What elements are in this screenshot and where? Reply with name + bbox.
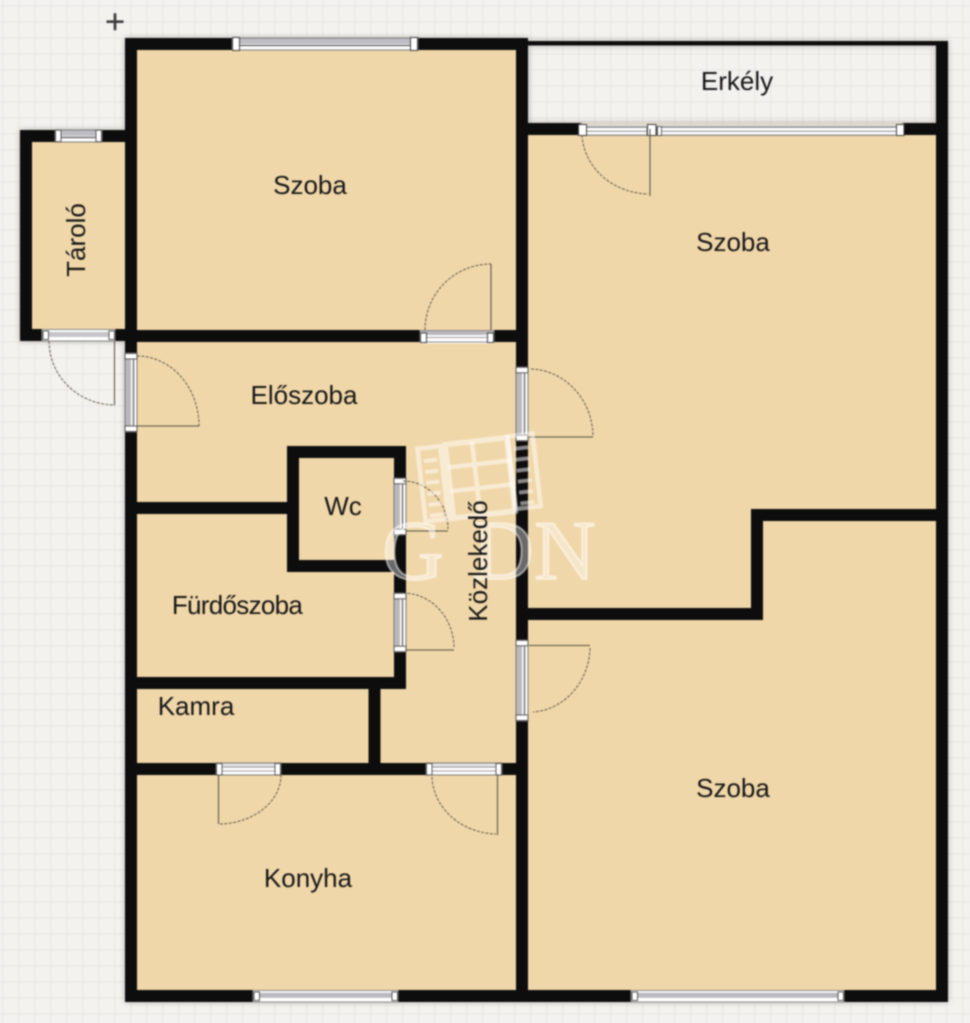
svg-text:Szoba: Szoba: [273, 170, 347, 200]
svg-text:Tároló: Tároló: [61, 203, 91, 277]
svg-text:Előszoba: Előszoba: [251, 380, 358, 410]
svg-text:Kamra: Kamra: [158, 691, 235, 721]
svg-text:Fürdőszoba: Fürdőszoba: [172, 590, 304, 620]
svg-text:N: N: [534, 504, 595, 598]
svg-text:Szoba: Szoba: [696, 227, 770, 257]
svg-text:Közlekedő: Közlekedő: [463, 500, 493, 621]
svg-text:Wc: Wc: [324, 491, 362, 521]
svg-text:G: G: [382, 504, 443, 598]
svg-text:Erkély: Erkély: [701, 66, 773, 96]
svg-text:Szoba: Szoba: [696, 773, 770, 803]
svg-text:Konyha: Konyha: [264, 863, 353, 893]
